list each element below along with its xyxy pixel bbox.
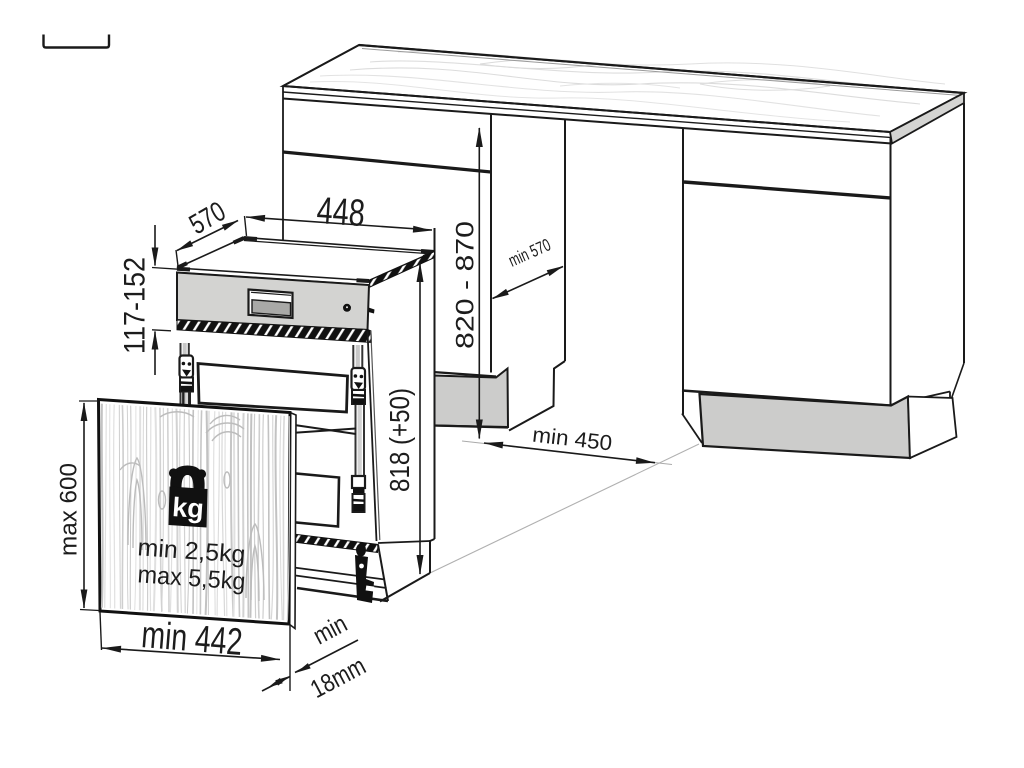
svg-text:max 600: max 600 — [56, 463, 83, 556]
svg-text:117-152: 117-152 — [119, 257, 152, 354]
svg-text:448: 448 — [315, 190, 366, 235]
svg-text:820 - 870: 820 - 870 — [452, 221, 480, 349]
svg-text:kg: kg — [171, 492, 204, 524]
svg-text:818 (+50): 818 (+50) — [384, 388, 415, 492]
svg-text:min 442: min 442 — [140, 614, 244, 664]
